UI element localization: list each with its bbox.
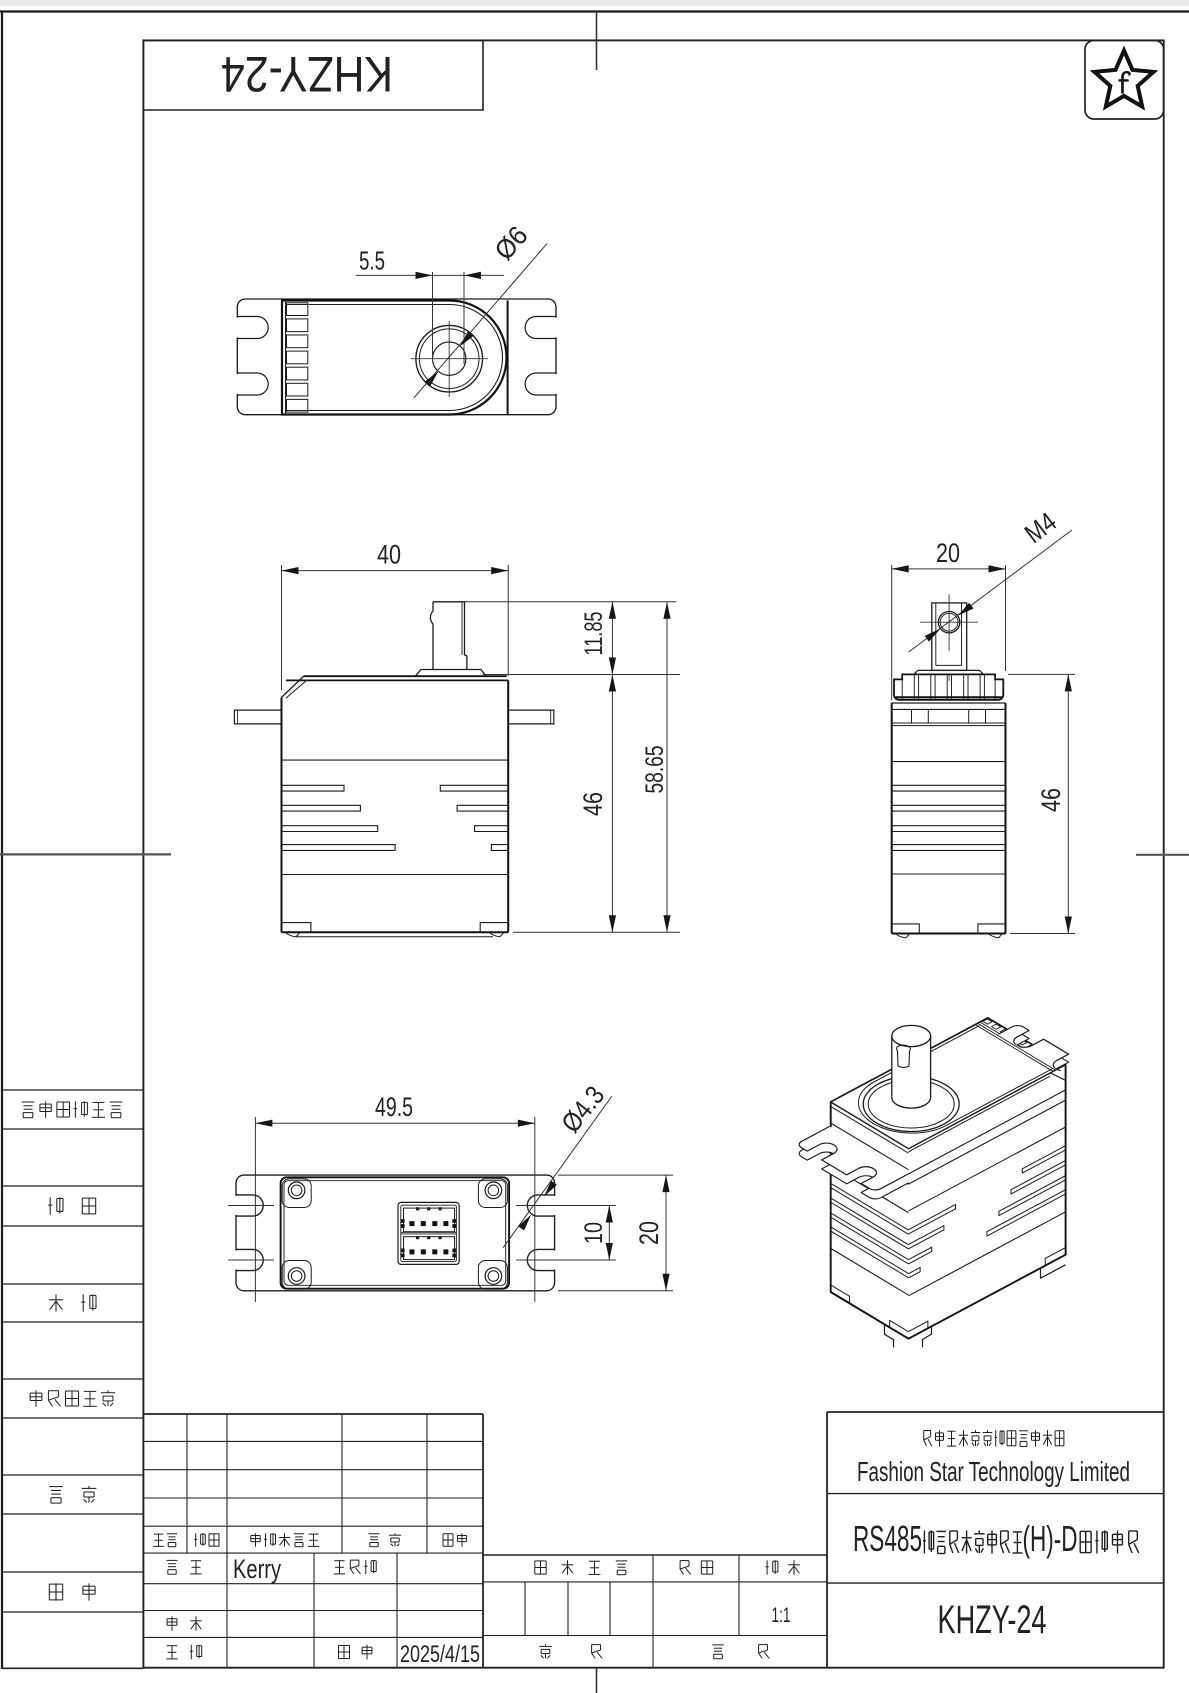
svg-text:Kerry: Kerry xyxy=(233,1554,281,1584)
svg-text:KHZY-24: KHZY-24 xyxy=(938,1598,1047,1642)
svg-text:46: 46 xyxy=(578,792,608,816)
svg-text:1:1: 1:1 xyxy=(772,1604,791,1627)
svg-text:Ø6: Ø6 xyxy=(489,220,534,265)
svg-text:40: 40 xyxy=(377,540,401,570)
svg-text:2025/4/15: 2025/4/15 xyxy=(400,1641,480,1668)
svg-text:RS485: RS485 xyxy=(853,1518,922,1559)
svg-text:11.85: 11.85 xyxy=(580,612,608,656)
svg-text:Ø4.3: Ø4.3 xyxy=(556,1080,611,1138)
svg-text:49.5: 49.5 xyxy=(375,1092,413,1122)
svg-text:46: 46 xyxy=(1036,788,1066,812)
svg-text:(H)-D: (H)-D xyxy=(1023,1518,1078,1559)
svg-text:20: 20 xyxy=(634,1221,664,1245)
svg-text:Fashion Star Technology Limite: Fashion Star Technology Limited xyxy=(857,1456,1130,1487)
svg-text:KHZY-24: KHZY-24 xyxy=(221,46,393,102)
svg-text:10: 10 xyxy=(580,1222,608,1244)
svg-text:5.5: 5.5 xyxy=(359,246,385,276)
svg-text:58.65: 58.65 xyxy=(641,746,669,794)
svg-text:20: 20 xyxy=(936,538,960,568)
